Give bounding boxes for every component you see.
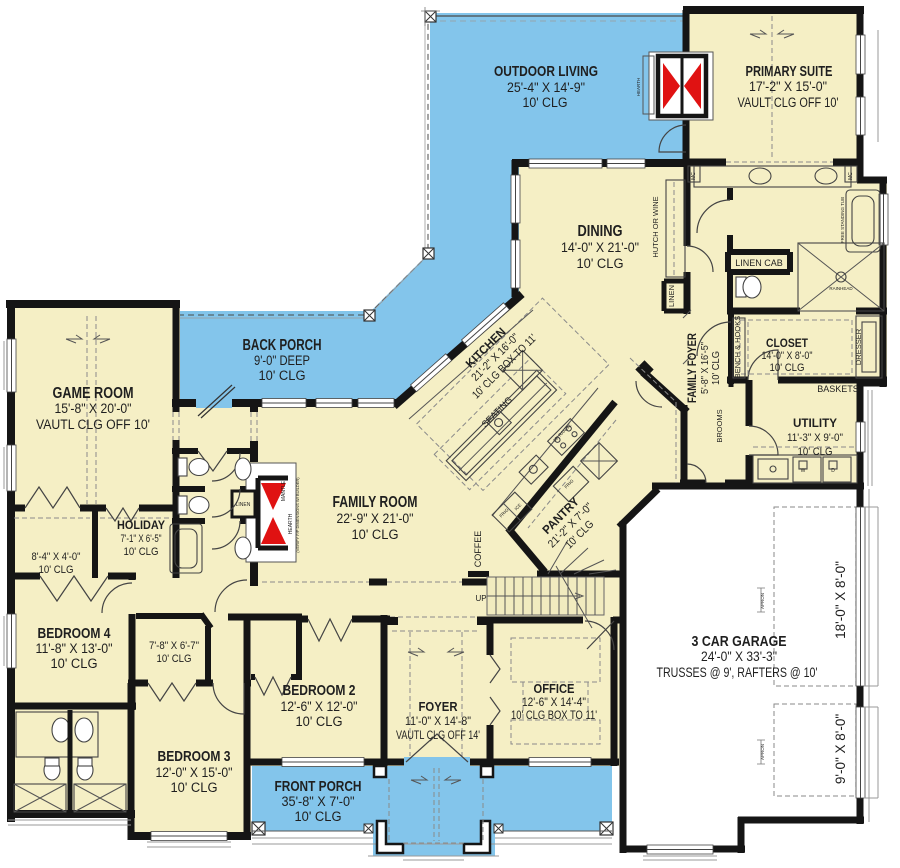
svg-text:OFFICE: OFFICE (534, 682, 575, 696)
svg-text:11'-3" X 9'-0": 11'-3" X 9'-0" (787, 432, 843, 444)
svg-text:10' CLG BOX TO 11': 10' CLG BOX TO 11' (511, 710, 597, 722)
svg-text:25'-4" X 14'-9": 25'-4" X 14'-9" (507, 80, 585, 95)
svg-text:14'-0" X 8'-0": 14'-0" X 8'-0" (762, 350, 813, 362)
svg-text:10' CLG: 10' CLG (770, 362, 805, 374)
svg-text:10' CLG: 10' CLG (352, 527, 399, 542)
svg-text:10' CLG: 10' CLG (157, 653, 192, 665)
svg-text:FAMILY FOYER: FAMILY FOYER (687, 332, 699, 403)
svg-text:10' CLG: 10' CLG (51, 656, 98, 671)
svg-text:MANTLE: MANTLE (281, 480, 287, 501)
svg-text:HOLIDAY: HOLIDAY (117, 518, 165, 532)
svg-text:LINEN: LINEN (236, 502, 251, 508)
svg-text:HEARTH: HEARTH (636, 78, 641, 96)
svg-text:BEDROOM 4: BEDROOM 4 (38, 625, 112, 642)
svg-text:8'-4" X 4'-0": 8'-4" X 4'-0" (32, 551, 81, 563)
svg-text:12'-6" X 12'-0": 12'-6" X 12'-0" (281, 699, 358, 714)
svg-text:10' CLG: 10' CLG (710, 351, 722, 385)
svg-text:7'-8" X 6'-7": 7'-8" X 6'-7" (149, 640, 199, 652)
svg-text:PRIMARY SUITE: PRIMARY SUITE (746, 63, 833, 80)
svg-text:VAUTL CLG OFF 14': VAUTL CLG OFF 14' (396, 730, 480, 742)
svg-text:BEDROOM 2: BEDROOM 2 (283, 682, 356, 699)
svg-text:11'-0" X 14'-8": 11'-0" X 14'-8" (405, 716, 471, 728)
svg-text:D: D (831, 468, 835, 474)
svg-text:RAINHEAD: RAINHEAD (829, 286, 853, 291)
svg-text:MC: MC (691, 172, 697, 180)
svg-text:10' CLG: 10' CLG (39, 564, 74, 576)
svg-text:10' CLG: 10' CLG (259, 368, 306, 383)
svg-text:FRONT PORCH: FRONT PORCH (275, 778, 362, 795)
svg-text:APRON: APRON (760, 593, 765, 609)
svg-text:DRESSER: DRESSER (854, 328, 863, 365)
svg-text:9'-0" DEEP: 9'-0" DEEP (254, 353, 310, 368)
svg-text:10' CLG: 10' CLG (296, 714, 343, 729)
svg-text:12'-6" X 14'-4": 12'-6" X 14'-4" (522, 697, 586, 709)
svg-text:BACK PORCH: BACK PORCH (243, 337, 322, 354)
svg-text:VAULT CLG OFF 10': VAULT CLG OFF 10' (738, 95, 839, 110)
svg-text:7'-1" X 6'-5": 7'-1" X 6'-5" (121, 533, 162, 545)
svg-text:BENCH & HOOKS: BENCH & HOOKS (733, 316, 742, 379)
svg-text:24'-0" X 33'-3": 24'-0" X 33'-3" (701, 649, 777, 664)
svg-text:12'-0" X 15'-0": 12'-0" X 15'-0" (156, 765, 233, 780)
svg-text:HUTCH OR WINE: HUTCH OR WINE (651, 196, 660, 257)
svg-text:UTILITY: UTILITY (793, 416, 837, 430)
svg-text:10' CLG: 10' CLG (577, 256, 624, 271)
svg-text:W: W (801, 468, 806, 474)
svg-text:FREE STANDING TUB: FREE STANDING TUB (840, 197, 845, 243)
svg-text:GAME ROOM: GAME ROOM (53, 385, 134, 402)
svg-text:3 CAR GARAGE: 3 CAR GARAGE (692, 633, 787, 650)
svg-text:CLOSET: CLOSET (766, 336, 809, 350)
svg-text:14'-0" X 21'-0": 14'-0" X 21'-0" (561, 240, 639, 255)
svg-text:BEDROOM 3: BEDROOM 3 (158, 748, 231, 765)
svg-text:10' CLG: 10' CLG (295, 809, 342, 824)
svg-text:BASKETS: BASKETS (817, 384, 859, 394)
svg-text:FOYER: FOYER (419, 700, 458, 714)
svg-text:FAMILY ROOM: FAMILY ROOM (333, 494, 418, 511)
svg-text:11'-8" X 13'-0": 11'-8" X 13'-0" (36, 641, 113, 656)
svg-text:DINING: DINING (578, 223, 623, 240)
svg-text:10' CLG: 10' CLG (124, 546, 159, 558)
svg-text:COFFEE: COFFEE (473, 531, 483, 568)
svg-text:10' CLG: 10' CLG (171, 780, 218, 795)
svg-text:22'-9" X 21'-0": 22'-9" X 21'-0" (337, 511, 414, 526)
svg-text:BROOMS: BROOMS (715, 409, 724, 442)
svg-text:(VERIFY F/P DIMENSIONS W/ BUIL: (VERIFY F/P DIMENSIONS W/ BUILDER) (295, 477, 300, 553)
svg-text:9'-0" X 8'-0": 9'-0" X 8'-0" (833, 714, 848, 784)
svg-text:TRUSSES @ 9', RAFTERS @ 10': TRUSSES @ 9', RAFTERS @ 10' (657, 665, 818, 680)
svg-text:18'-0" X 8'-0": 18'-0" X 8'-0" (833, 561, 848, 639)
svg-text:HEARTH: HEARTH (288, 513, 294, 534)
svg-text:15'-8" X 20'-0": 15'-8" X 20'-0" (55, 401, 132, 416)
svg-text:LINEN: LINEN (667, 285, 676, 307)
svg-text:UP: UP (475, 594, 486, 603)
svg-text:10' CLG: 10' CLG (798, 446, 833, 458)
svg-text:LINEN CAB: LINEN CAB (735, 258, 783, 268)
svg-text:10' CLG: 10' CLG (523, 95, 568, 110)
svg-text:VAUTL CLG OFF 10': VAUTL CLG OFF 10' (36, 417, 150, 432)
svg-text:17'-2" X 15'-0": 17'-2" X 15'-0" (749, 79, 827, 94)
svg-text:APRON: APRON (760, 744, 765, 760)
svg-text:MC: MC (848, 172, 854, 180)
svg-text:35'-8" X 7'-0": 35'-8" X 7'-0" (282, 794, 355, 809)
svg-text:OUTDOOR LIVING: OUTDOOR LIVING (494, 63, 598, 80)
